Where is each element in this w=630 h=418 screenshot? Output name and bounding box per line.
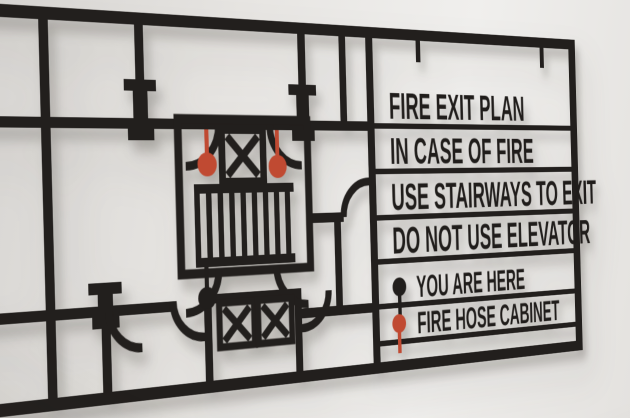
elevator-icon [221, 130, 264, 183]
message-line: IN CASE OF FIRE [390, 136, 595, 169]
walls [0, 9, 374, 418]
elevator-icon [258, 298, 293, 344]
message-line: USE STAIRWAYS TO EXIT [391, 177, 630, 215]
photo: FIRE EXIT PLAN IN CASE OF FIRE USE STAIR… [0, 0, 630, 418]
stairs-icon [194, 183, 296, 268]
message-line: DO NOT USE ELEVATOR [392, 215, 630, 259]
elevator-icon [219, 301, 255, 348]
fire-exit-plan-sign: FIRE EXIT PLAN IN CASE OF FIRE USE STAIR… [0, 0, 583, 418]
message-line: FIRE EXIT PLAN [389, 91, 583, 126]
